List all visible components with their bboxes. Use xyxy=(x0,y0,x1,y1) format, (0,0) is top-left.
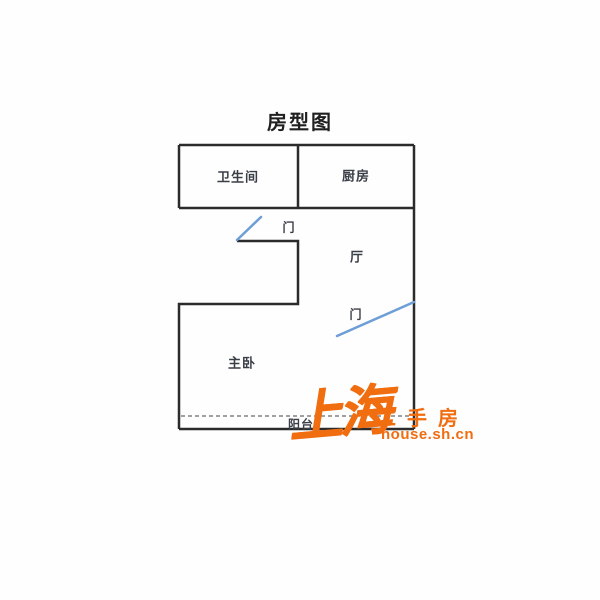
wall-top-block xyxy=(179,145,414,208)
floor-plan-image: 房型图 卫生间 厨房 门 厅 门 主卧 阳台 上海 二手房 house.sh.c… xyxy=(0,0,600,600)
wall-step-left xyxy=(179,241,298,429)
watermark-brand-calligraphy: 上海 xyxy=(286,380,391,448)
room-label-master-bedroom: 主卧 xyxy=(228,353,256,372)
door-swing-line-1 xyxy=(237,217,261,240)
door-label-2: 门 xyxy=(349,306,362,323)
room-label-hall: 厅 xyxy=(350,247,364,266)
floor-plan-drawing xyxy=(0,0,600,600)
room-label-bathroom: 卫生间 xyxy=(217,167,259,186)
door-label-1: 门 xyxy=(282,219,295,236)
room-label-kitchen: 厨房 xyxy=(342,166,370,185)
watermark-site-url: house.sh.cn xyxy=(381,426,474,443)
